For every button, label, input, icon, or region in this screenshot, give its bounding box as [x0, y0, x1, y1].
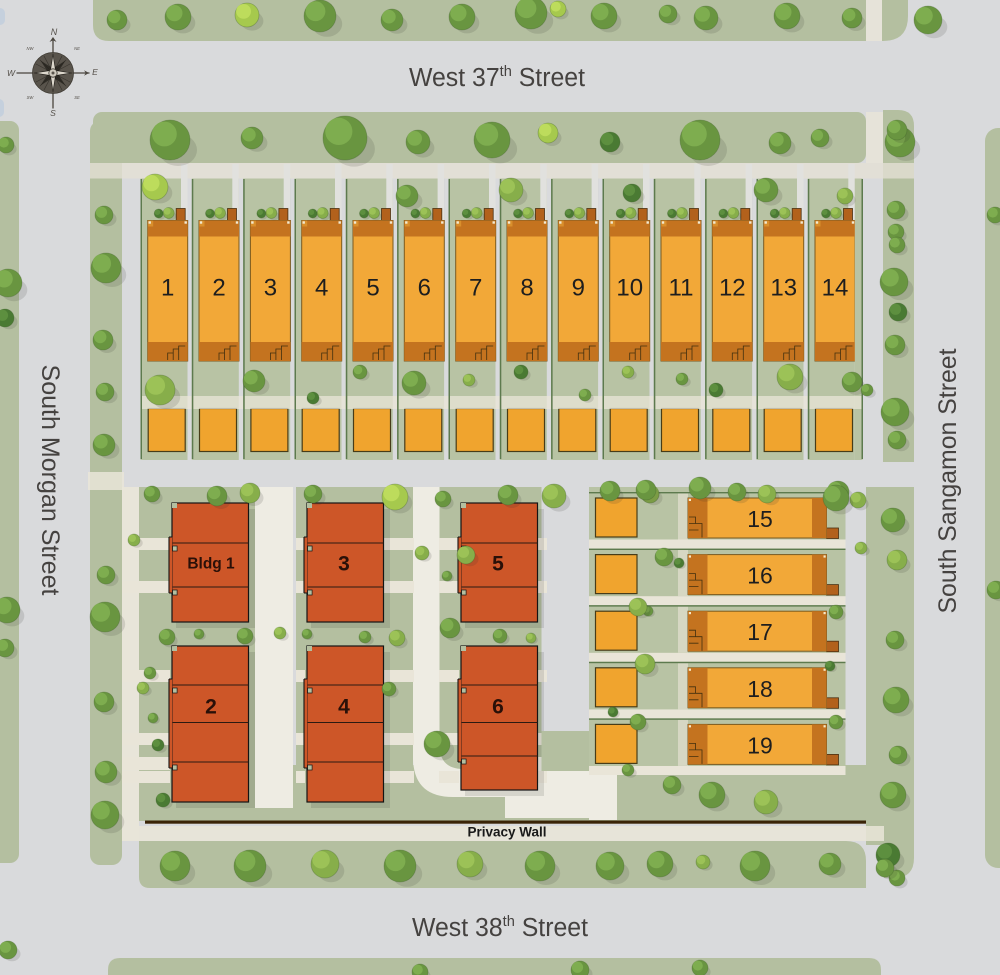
- svg-text:10: 10: [616, 275, 643, 302]
- svg-text:5: 5: [492, 553, 504, 576]
- svg-text:NW: NW: [27, 46, 35, 51]
- svg-text:11: 11: [669, 275, 694, 302]
- svg-text:18: 18: [747, 676, 773, 702]
- svg-text:8: 8: [520, 275, 533, 302]
- svg-text:12: 12: [719, 275, 746, 302]
- svg-text:Bldg 1: Bldg 1: [187, 556, 235, 573]
- svg-text:West 38th Street: West 38th Street: [412, 913, 588, 943]
- svg-text:19: 19: [747, 732, 773, 758]
- svg-text:West 37th Street: West 37th Street: [409, 63, 585, 93]
- svg-text:13: 13: [770, 275, 797, 302]
- svg-text:7: 7: [469, 275, 482, 302]
- svg-text:14: 14: [822, 275, 849, 302]
- svg-text:Privacy Wall: Privacy Wall: [467, 825, 546, 840]
- svg-text:SE: SE: [74, 95, 80, 100]
- svg-text:3: 3: [264, 275, 277, 302]
- svg-text:W: W: [7, 68, 16, 78]
- svg-text:6: 6: [492, 696, 504, 719]
- svg-text:1: 1: [161, 275, 174, 302]
- svg-text:N: N: [51, 27, 58, 37]
- svg-text:4: 4: [338, 696, 350, 719]
- svg-text:15: 15: [747, 506, 773, 532]
- svg-text:2: 2: [205, 696, 217, 719]
- svg-text:NE: NE: [74, 46, 80, 51]
- svg-text:2: 2: [212, 275, 225, 302]
- svg-text:5: 5: [366, 275, 379, 302]
- svg-text:6: 6: [418, 275, 431, 302]
- svg-text:4: 4: [315, 275, 328, 302]
- svg-text:South Sangamon Street: South Sangamon Street: [934, 348, 962, 613]
- svg-text:17: 17: [747, 619, 773, 645]
- svg-text:E: E: [92, 67, 98, 77]
- svg-text:9: 9: [572, 275, 585, 302]
- svg-text:SW: SW: [27, 95, 35, 100]
- svg-text:16: 16: [747, 563, 773, 589]
- svg-text:3: 3: [338, 553, 350, 576]
- svg-text:South Morgan Street: South Morgan Street: [36, 365, 64, 596]
- svg-text:S: S: [50, 108, 56, 118]
